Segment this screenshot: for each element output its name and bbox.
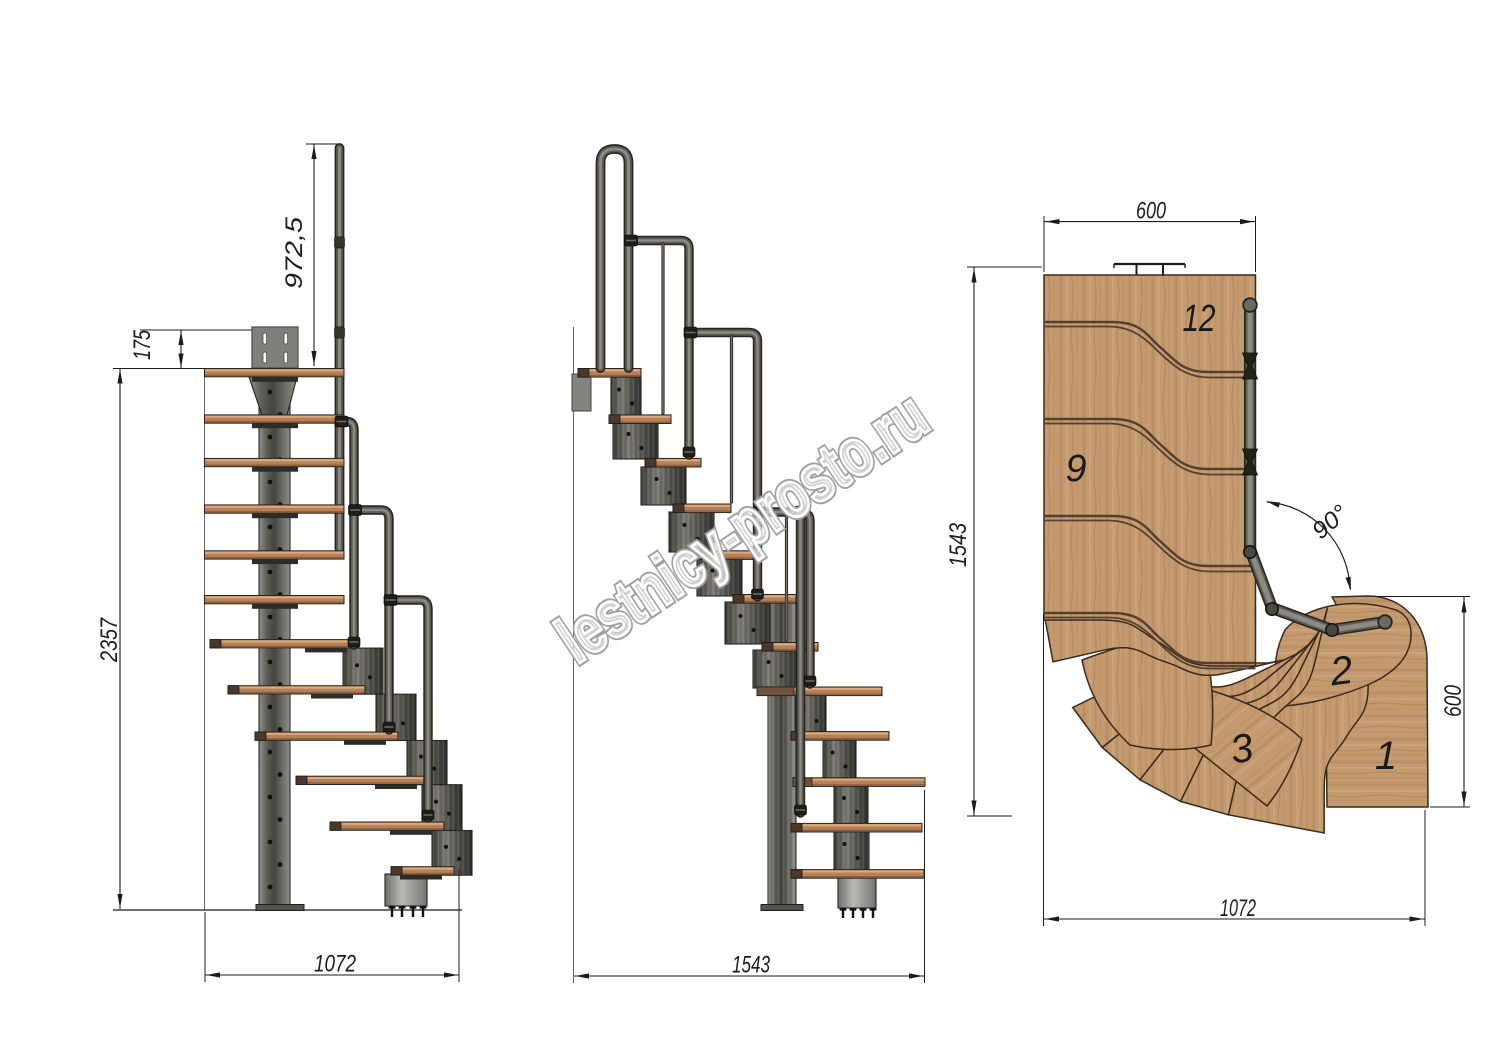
svg-text:1072: 1072 <box>1220 895 1256 922</box>
svg-text:1543: 1543 <box>732 952 770 979</box>
svg-text:1072: 1072 <box>314 951 356 978</box>
svg-text:2357: 2357 <box>96 617 123 663</box>
svg-text:1543: 1543 <box>945 522 972 567</box>
svg-text:600: 600 <box>1440 684 1467 717</box>
svg-text:175: 175 <box>129 330 156 360</box>
svg-text:9: 9 <box>1065 448 1086 490</box>
svg-text:12: 12 <box>1183 298 1216 340</box>
svg-text:600: 600 <box>1136 197 1166 224</box>
svg-text:972,5: 972,5 <box>281 216 308 289</box>
svg-text:1: 1 <box>1375 734 1397 778</box>
svg-text:90°: 90° <box>1307 499 1354 544</box>
